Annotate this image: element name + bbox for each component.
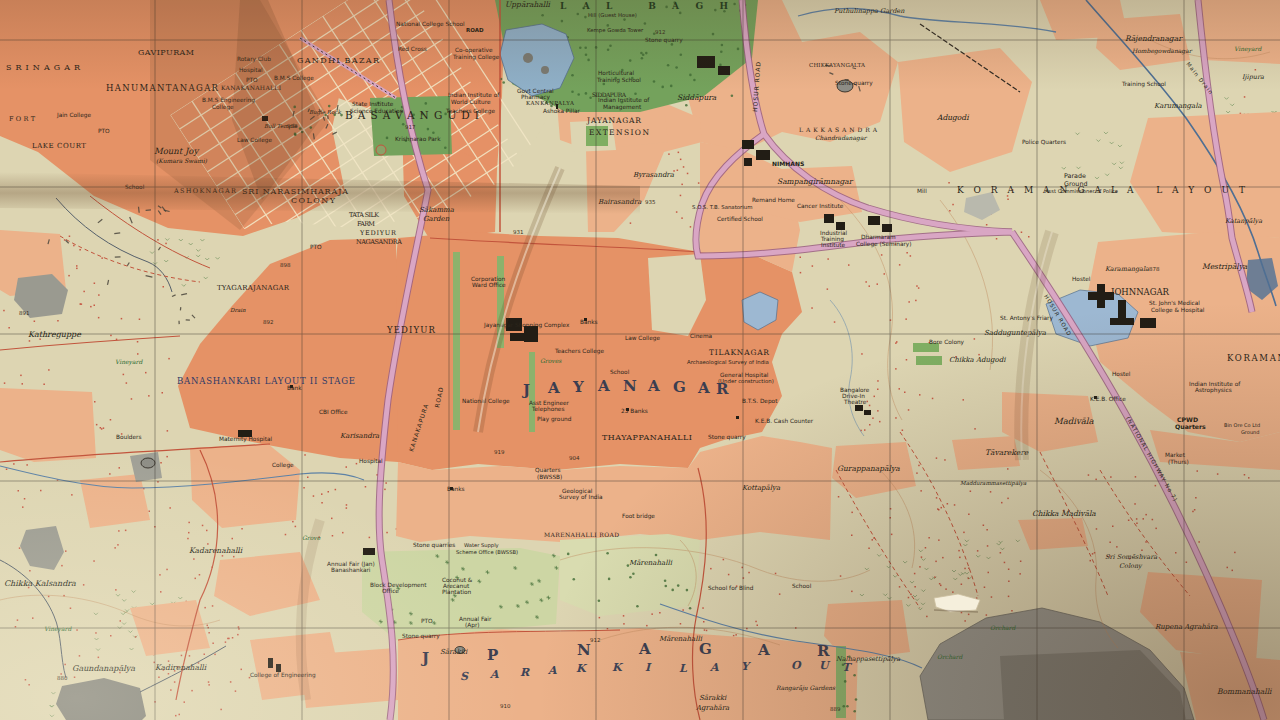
topographic-map-svg: JAYANAGARJPNAGARSARAKKILAYOUTSRINAGARGAV… xyxy=(0,0,1280,720)
map-photo: JAYANAGARJPNAGARSARAKKILAYOUTSRINAGARGAV… xyxy=(0,0,1280,720)
photo-effects xyxy=(0,0,1280,720)
